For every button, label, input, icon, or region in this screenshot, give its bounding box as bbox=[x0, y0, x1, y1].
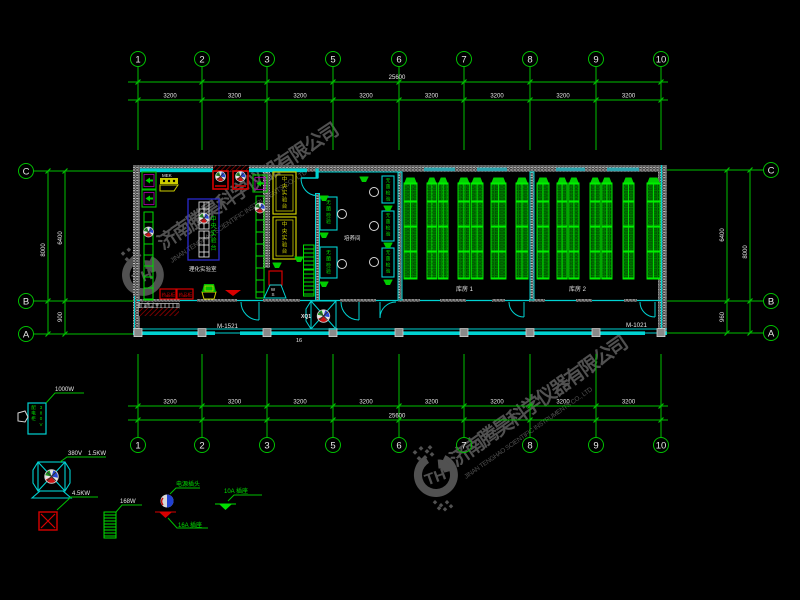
svg-text:3200: 3200 bbox=[425, 400, 439, 406]
svg-text:8: 8 bbox=[527, 55, 532, 66]
svg-text:5: 5 bbox=[330, 441, 335, 452]
svg-text:C: C bbox=[768, 166, 775, 177]
svg-text:7: 7 bbox=[461, 55, 466, 66]
svg-text:3200: 3200 bbox=[425, 94, 439, 100]
svg-text:药品柜: 药品柜 bbox=[179, 292, 193, 299]
svg-text:3200: 3200 bbox=[556, 400, 570, 406]
svg-text:3200: 3200 bbox=[228, 400, 242, 406]
svg-text:XQ1: XQ1 bbox=[301, 314, 311, 320]
svg-text:960: 960 bbox=[720, 311, 726, 322]
svg-text:无菌检验: 无菌检验 bbox=[326, 250, 331, 275]
svg-text:A: A bbox=[768, 329, 775, 340]
svg-text:1000W: 1000W bbox=[55, 387, 74, 393]
svg-text:理化实验室: 理化实验室 bbox=[189, 265, 217, 273]
svg-text:B: B bbox=[768, 297, 774, 308]
svg-text:6400: 6400 bbox=[720, 228, 726, 242]
svg-text:2: 2 bbox=[199, 55, 204, 66]
svg-text:380V: 380V bbox=[39, 405, 42, 427]
svg-text:6: 6 bbox=[396, 441, 401, 452]
svg-text:3200: 3200 bbox=[490, 400, 504, 406]
svg-text:3200: 3200 bbox=[556, 94, 570, 100]
svg-text:配电柜: 配电柜 bbox=[31, 405, 36, 422]
svg-text:MEK: MEK bbox=[162, 173, 172, 178]
svg-text:3200: 3200 bbox=[228, 94, 242, 100]
svg-text:7: 7 bbox=[461, 441, 466, 452]
svg-text:无菌检验: 无菌检验 bbox=[326, 200, 331, 225]
svg-text:库房 1: 库房 1 bbox=[456, 285, 474, 293]
svg-text:3200: 3200 bbox=[490, 94, 504, 100]
svg-text:1: 1 bbox=[135, 441, 140, 452]
svg-text:6: 6 bbox=[396, 55, 401, 66]
svg-text:A: A bbox=[23, 330, 30, 341]
svg-text:中央实验台: 中央实验台 bbox=[282, 220, 288, 255]
svg-text:1: 1 bbox=[135, 55, 140, 66]
svg-text:3200: 3200 bbox=[622, 94, 636, 100]
svg-text:3200: 3200 bbox=[359, 400, 373, 406]
svg-text:6400: 6400 bbox=[58, 231, 64, 245]
svg-text:中央实验台: 中央实验台 bbox=[210, 215, 216, 252]
svg-text:3200: 3200 bbox=[163, 94, 177, 100]
svg-text:2: 2 bbox=[199, 441, 204, 452]
svg-text:900: 900 bbox=[58, 311, 64, 322]
svg-text:4.5KW: 4.5KW bbox=[72, 491, 90, 497]
svg-text:8000: 8000 bbox=[743, 245, 749, 259]
svg-text:3: 3 bbox=[264, 441, 269, 452]
svg-text:3200: 3200 bbox=[293, 94, 307, 100]
svg-text:3200: 3200 bbox=[163, 400, 177, 406]
svg-text:3200: 3200 bbox=[293, 400, 307, 406]
svg-text:C: C bbox=[23, 167, 30, 178]
svg-text:培养间: 培养间 bbox=[344, 234, 361, 242]
svg-text:3200: 3200 bbox=[622, 400, 636, 406]
svg-text:9: 9 bbox=[593, 55, 598, 66]
svg-text:1.5KW: 1.5KW bbox=[88, 451, 106, 457]
svg-text:16A 插座: 16A 插座 bbox=[178, 521, 202, 529]
svg-text:8: 8 bbox=[527, 441, 532, 452]
svg-text:电源插头: 电源插头 bbox=[176, 480, 200, 488]
svg-text:380V: 380V bbox=[68, 451, 82, 457]
svg-text:8000: 8000 bbox=[41, 243, 47, 257]
svg-text:10: 10 bbox=[656, 55, 667, 66]
svg-text:9: 9 bbox=[593, 441, 598, 452]
svg-text:中央实验台: 中央实验台 bbox=[282, 175, 288, 210]
svg-text:药品柜: 药品柜 bbox=[162, 292, 176, 299]
svg-text:B: B bbox=[23, 297, 29, 308]
svg-text:25600: 25600 bbox=[389, 414, 406, 420]
svg-text:5: 5 bbox=[330, 55, 335, 66]
svg-text:168W: 168W bbox=[120, 499, 136, 505]
svg-text:16: 16 bbox=[296, 338, 302, 344]
svg-text:M-1021: M-1021 bbox=[626, 322, 648, 329]
svg-text:10A 插座: 10A 插座 bbox=[224, 487, 248, 495]
svg-text:10: 10 bbox=[656, 441, 667, 452]
svg-text:25600: 25600 bbox=[389, 75, 406, 81]
svg-text:3: 3 bbox=[264, 55, 269, 66]
svg-text:M-1521: M-1521 bbox=[217, 323, 239, 330]
svg-text:3200: 3200 bbox=[359, 94, 373, 100]
svg-text:库房 2: 库房 2 bbox=[569, 285, 587, 293]
